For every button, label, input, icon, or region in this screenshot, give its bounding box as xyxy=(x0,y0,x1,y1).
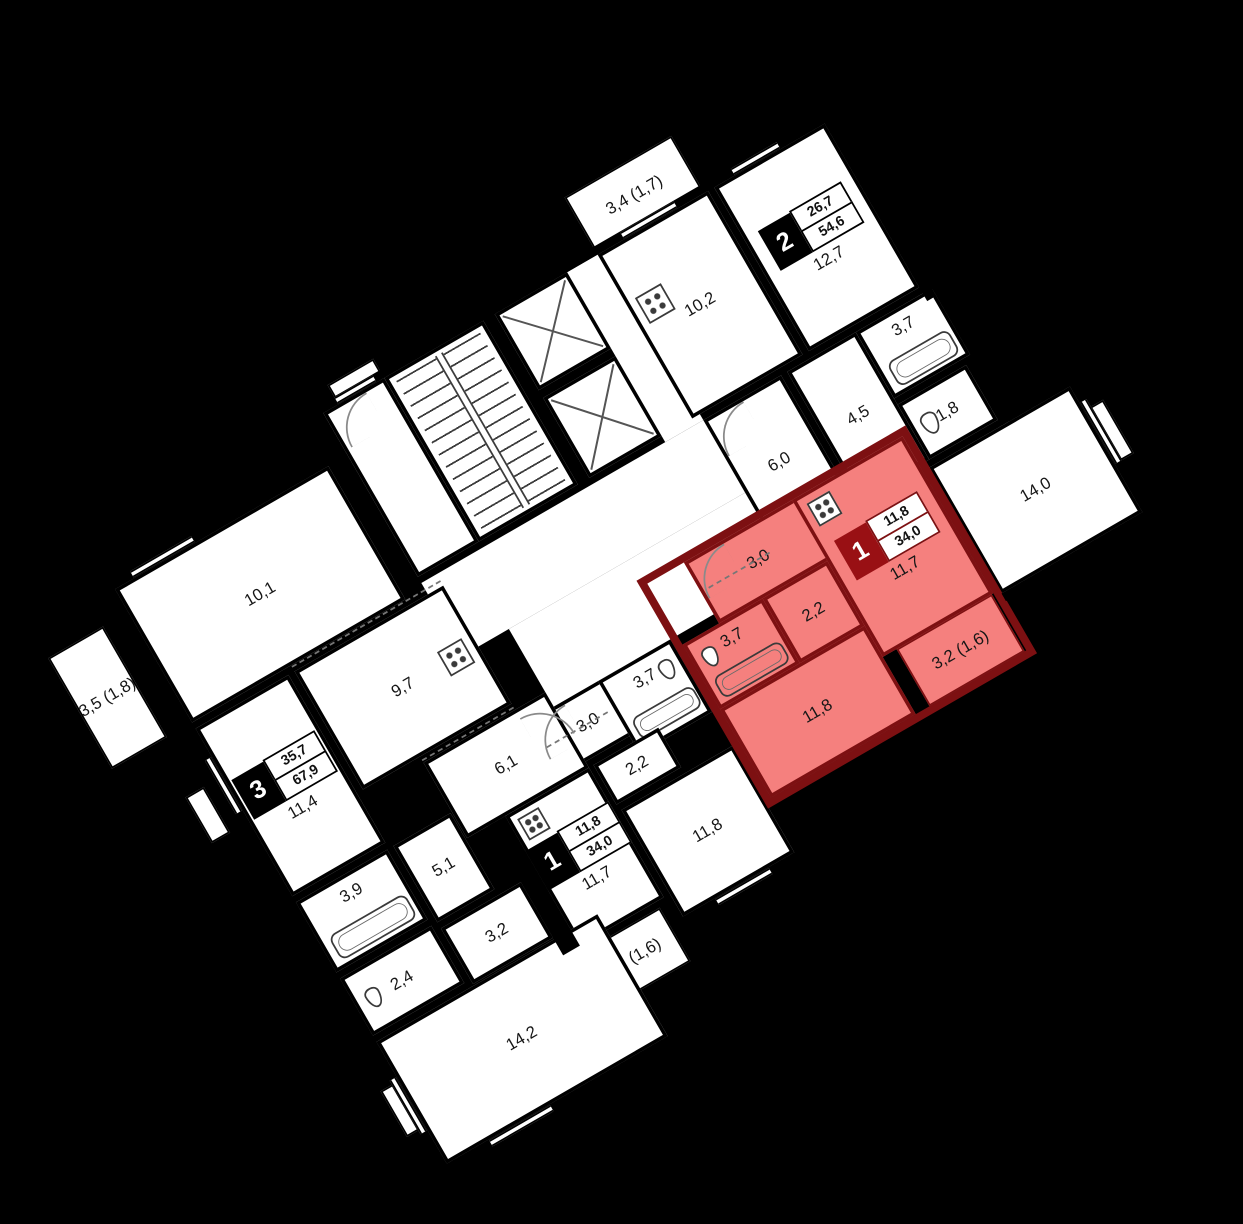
room-area-label: 14,0 xyxy=(1017,473,1055,506)
room-area-label: 4,5 xyxy=(843,401,873,429)
room-area-label: 6,1 xyxy=(491,751,521,779)
room-area-label: 3,7 xyxy=(888,312,918,340)
toilet-icon xyxy=(362,984,386,1010)
bathtub-icon xyxy=(630,684,703,741)
floorplan-canvas: { "colors": { "background": "#000000", "… xyxy=(0,0,1243,1224)
floor-plan: 3,4 (1,7) 10,2 2 26,7 54,6 12,7 6,0 4,5 … xyxy=(0,9,1243,1215)
room-area-label: 3,7 xyxy=(630,665,660,693)
stove-icon xyxy=(437,638,475,676)
room-area-label: 10,2 xyxy=(681,288,719,321)
room-area-label: 5,1 xyxy=(429,853,459,881)
room-area-label: 3,5 (1,8) xyxy=(76,674,140,722)
room-area-label: 14,2 xyxy=(503,1022,541,1055)
room-area-label: 3,9 xyxy=(337,879,367,907)
room-area-label: 10,1 xyxy=(241,578,279,611)
room-area-label: 3,2 xyxy=(482,919,512,947)
room-area-label: 2,4 xyxy=(387,967,417,995)
room-area-label: 6,0 xyxy=(765,448,795,476)
room-area-label: 9,7 xyxy=(388,673,418,701)
stove-icon xyxy=(517,807,551,841)
room-area-label: 2,2 xyxy=(622,752,652,780)
stove-icon xyxy=(635,283,676,324)
toilet-icon xyxy=(655,656,679,682)
room-area-label: 11,8 xyxy=(689,815,726,847)
